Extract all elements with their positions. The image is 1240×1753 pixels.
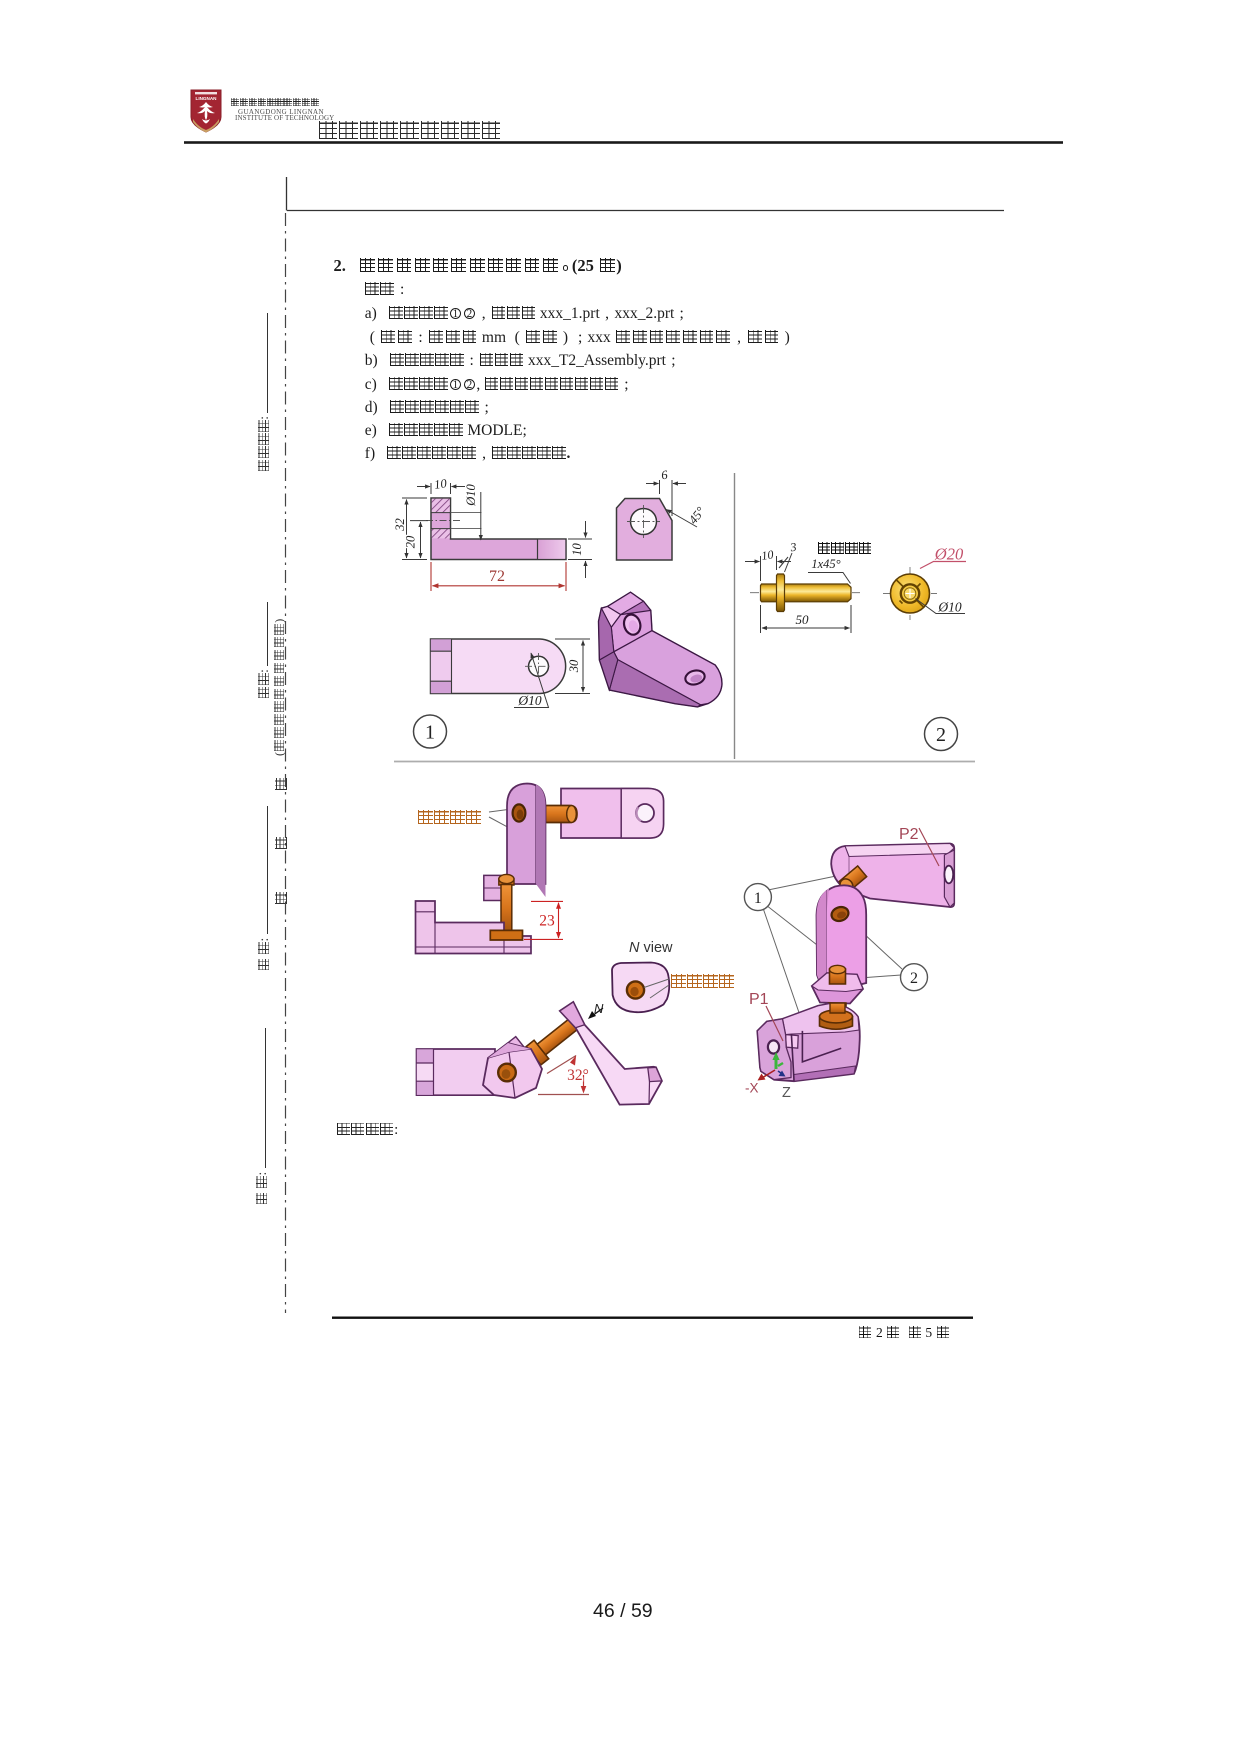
svg-text:30: 30: [567, 659, 581, 673]
svg-text:32: 32: [393, 518, 407, 532]
svg-text:Ø10: Ø10: [517, 693, 541, 708]
svg-text:-X: -X: [745, 1081, 759, 1096]
svg-text:3: 3: [789, 540, 798, 555]
svg-text:20: 20: [404, 535, 418, 548]
svg-text:23: 23: [539, 913, 555, 930]
svg-text:2: 2: [936, 724, 946, 746]
svg-text:Ø10: Ø10: [464, 483, 478, 506]
svg-text:N view: N view: [629, 940, 673, 956]
svg-text:10: 10: [570, 543, 584, 556]
svg-text:1: 1: [425, 722, 435, 744]
svg-text:10: 10: [433, 476, 448, 492]
svg-text:1x45°: 1x45°: [811, 557, 840, 571]
svg-text:32°: 32°: [567, 1067, 589, 1084]
svg-text:Z: Z: [782, 1085, 791, 1101]
svg-text:72: 72: [489, 568, 505, 585]
svg-text:50: 50: [796, 612, 810, 627]
svg-text:45°: 45°: [686, 504, 708, 526]
svg-text:Ø10: Ø10: [937, 600, 961, 615]
svg-text:2: 2: [910, 970, 918, 987]
svg-text:Ø20: Ø20: [934, 545, 964, 564]
svg-text:6: 6: [660, 468, 669, 483]
svg-text:P1: P1: [749, 991, 769, 1008]
svg-text:10: 10: [761, 547, 775, 563]
svg-text:1: 1: [754, 890, 762, 907]
svg-text:P2: P2: [899, 826, 919, 843]
